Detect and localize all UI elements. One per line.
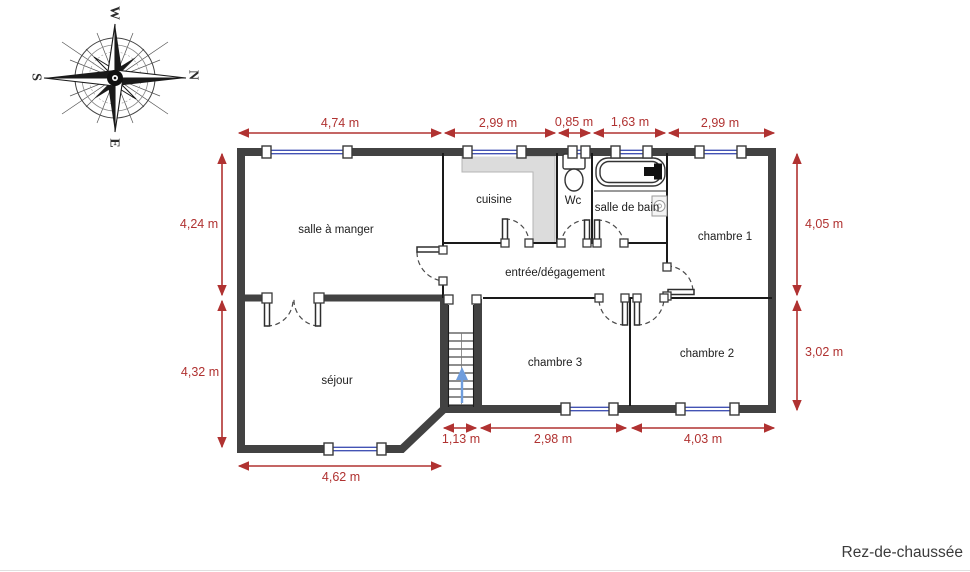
door-leaf — [265, 300, 270, 326]
door-leaf — [316, 300, 321, 326]
door-post — [439, 246, 447, 254]
staircase — [448, 305, 474, 407]
window-salle-a-manger — [262, 146, 352, 158]
dim-label: 0,85 m — [555, 115, 593, 129]
window-backing — [680, 405, 736, 414]
window-chambre3 — [561, 403, 618, 415]
door-salle-a-manger — [417, 246, 447, 285]
door-post — [439, 277, 447, 285]
window-post — [377, 443, 386, 455]
compass-letter-left: S — [29, 73, 44, 81]
floorplan-page: W N S E — [0, 0, 970, 572]
room-label-sejour: séjour — [321, 375, 352, 387]
door-chambre3 — [595, 294, 629, 325]
door-post — [593, 239, 601, 247]
stair-opening-post — [472, 295, 481, 304]
door-post — [595, 294, 603, 302]
floorplan-canvas: W N S E — [0, 0, 970, 572]
compass-point-right-dark — [115, 78, 186, 86]
bathtub-faucet-body — [654, 164, 662, 180]
door-leaf — [668, 290, 694, 295]
room-label-cuisine: cuisine — [476, 194, 512, 206]
window-backing — [699, 148, 742, 157]
door-leaf — [635, 300, 640, 325]
door-chambre2 — [633, 294, 668, 325]
compass-point-left-dark — [44, 70, 115, 78]
door-post — [620, 239, 628, 247]
door-post — [557, 239, 565, 247]
compass-rose: W N S E — [29, 6, 201, 148]
door-post — [583, 239, 591, 247]
window-cuisine — [463, 146, 526, 158]
dim-label: 4,62 m — [322, 470, 360, 484]
window-chambre1 — [695, 146, 746, 158]
compass-point-up-light — [107, 24, 115, 78]
window-sejour — [324, 443, 386, 455]
dim-label: 4,24 m — [180, 217, 218, 231]
room-label-chambre3: chambre 3 — [528, 357, 582, 369]
door-wc — [557, 220, 591, 247]
door-cuisine — [501, 219, 533, 247]
room-label-chambre1: chambre 1 — [698, 231, 752, 243]
window-post — [643, 146, 652, 158]
dim-label: 3,02 m — [805, 345, 843, 359]
window-post — [561, 403, 570, 415]
compass-letter-top: W — [107, 6, 122, 20]
room-label-salle-de-bain: salle de bain — [595, 202, 660, 214]
door-sejour-double — [262, 293, 324, 326]
window-post — [581, 146, 590, 158]
door-post — [262, 293, 272, 303]
dim-label: 4,74 m — [321, 116, 359, 130]
dim-label: 4,05 m — [805, 217, 843, 231]
window-post — [676, 403, 685, 415]
window-post — [517, 146, 526, 158]
window-post — [324, 443, 333, 455]
compass-point-left-light — [44, 78, 115, 86]
window-post — [463, 146, 472, 158]
window-post — [737, 146, 746, 158]
door-post — [663, 263, 671, 271]
window-salle-de-bain — [611, 146, 652, 158]
compass-point-right-light — [115, 70, 186, 78]
dim-label: 1,13 m — [442, 432, 480, 446]
window-post — [609, 403, 618, 415]
window-post — [343, 146, 352, 158]
window-post — [695, 146, 704, 158]
window-backing — [328, 445, 383, 454]
room-label-entree: entrée/dégagement — [505, 267, 606, 279]
window-wc — [568, 146, 590, 158]
compass-hub-dot — [114, 77, 117, 80]
door-post — [660, 294, 668, 302]
compass-letter-bottom: E — [107, 138, 122, 147]
room-label-salle-a-manger: salle à manger — [298, 224, 374, 236]
door-post — [621, 294, 629, 302]
door-salle-de-bain — [593, 220, 628, 247]
compass-point-down-light — [115, 78, 123, 132]
window-chambre2 — [676, 403, 739, 415]
dim-label: 2,99 m — [701, 116, 739, 130]
dim-label: 4,03 m — [684, 432, 722, 446]
room-label-chambre2: chambre 2 — [680, 348, 734, 360]
window-post — [611, 146, 620, 158]
dim-label: 4,32 m — [181, 365, 219, 379]
window-post — [730, 403, 739, 415]
window-backing — [266, 148, 348, 157]
door-post — [525, 239, 533, 247]
door-post — [501, 239, 509, 247]
window-backing — [467, 148, 523, 157]
compass-letter-right: N — [186, 70, 201, 80]
door-post — [314, 293, 324, 303]
window-backing — [565, 405, 615, 414]
door-leaf — [623, 300, 628, 325]
window-post — [262, 146, 271, 158]
floor-title: Rez-de-chaussée — [842, 544, 963, 561]
toilet-bowl — [565, 169, 583, 191]
room-label-wc: Wc — [565, 195, 582, 207]
dim-label: 2,99 m — [479, 116, 517, 130]
window-post — [568, 146, 577, 158]
door-post — [633, 294, 641, 302]
dim-label: 1,63 m — [611, 115, 649, 129]
dim-label: 2,98 m — [534, 432, 572, 446]
stair-opening-post — [444, 295, 453, 304]
